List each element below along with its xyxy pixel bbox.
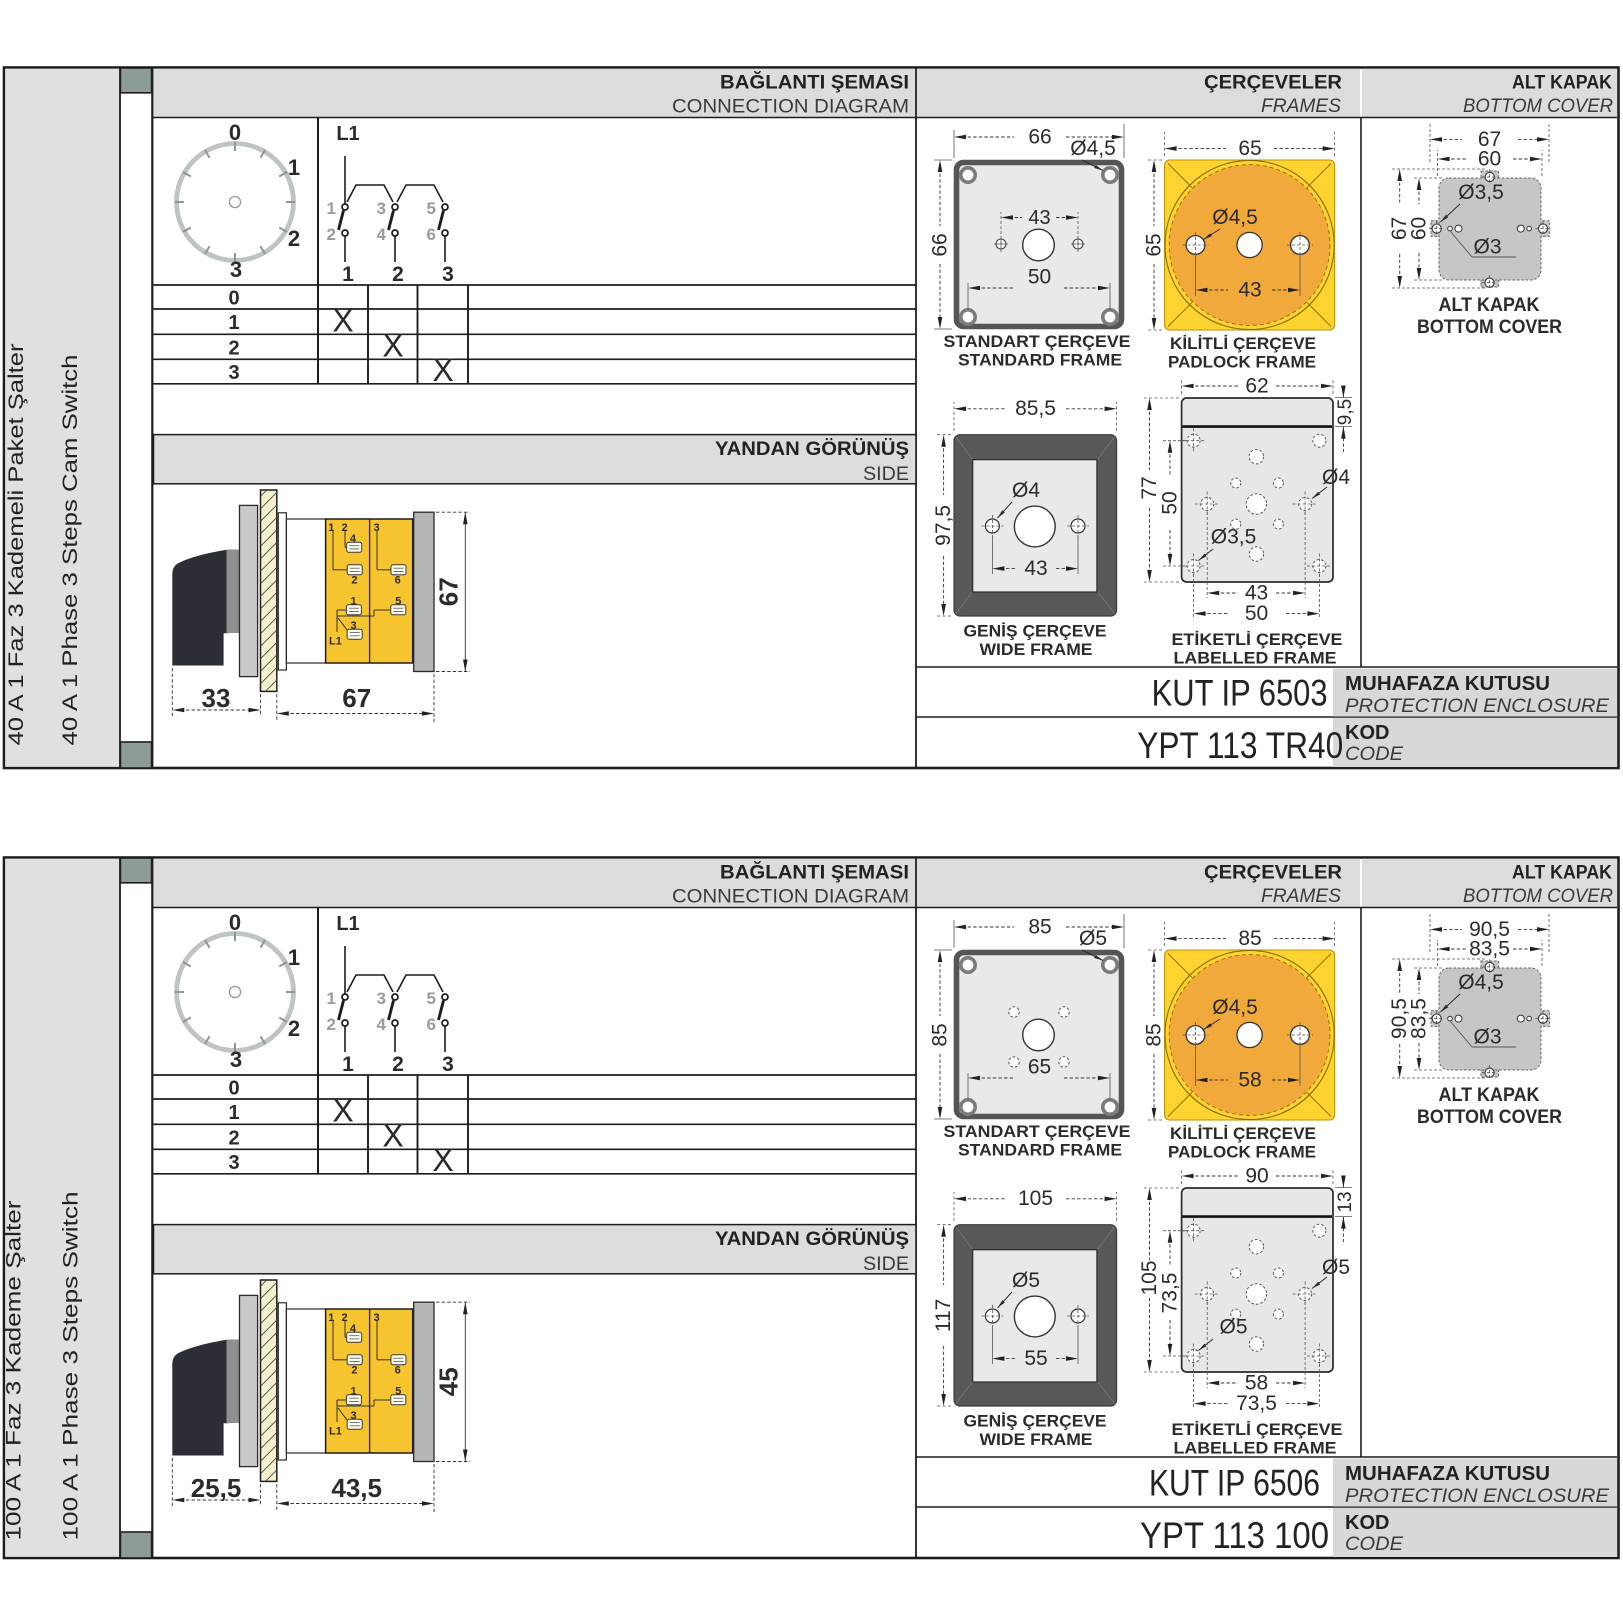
svg-text:3: 3: [351, 1410, 357, 1422]
svg-text:85: 85: [1143, 1023, 1166, 1046]
svg-text:67: 67: [342, 683, 371, 713]
svg-text:40 A 1 Phase 3 Steps Cam Switc: 40 A 1 Phase 3 Steps Cam Switch: [58, 355, 82, 746]
svg-text:2: 2: [288, 226, 300, 251]
svg-text:YPT 113 100: YPT 113 100: [1140, 1515, 1329, 1556]
svg-text:PADLOCK FRAME: PADLOCK FRAME: [1168, 353, 1316, 372]
svg-text:BOTTOM COVER: BOTTOM COVER: [1417, 1106, 1562, 1128]
svg-text:6: 6: [395, 1365, 401, 1377]
svg-text:97,5: 97,5: [932, 505, 955, 546]
svg-text:ALT KAPAK: ALT KAPAK: [1439, 1084, 1540, 1106]
svg-text:4: 4: [377, 225, 387, 244]
svg-text:X: X: [382, 1118, 403, 1154]
svg-text:STANDARD FRAME: STANDARD FRAME: [958, 1141, 1122, 1160]
svg-text:STANDART ÇERÇEVE: STANDART ÇERÇEVE: [944, 1122, 1131, 1141]
svg-text:50: 50: [1028, 266, 1051, 289]
svg-text:85: 85: [1238, 927, 1261, 950]
svg-text:Ø4,5: Ø4,5: [1212, 996, 1258, 1019]
svg-text:1: 1: [342, 263, 354, 286]
svg-text:1: 1: [228, 1102, 239, 1124]
svg-text:CODE: CODE: [1345, 743, 1404, 765]
svg-text:43,5: 43,5: [331, 1473, 382, 1503]
svg-text:13: 13: [1335, 1191, 1356, 1212]
svg-text:0: 0: [229, 120, 241, 145]
svg-text:STANDART ÇERÇEVE: STANDART ÇERÇEVE: [944, 332, 1131, 351]
svg-text:4: 4: [377, 1015, 387, 1034]
svg-text:5: 5: [395, 596, 401, 608]
svg-text:1: 1: [351, 596, 357, 608]
svg-text:50: 50: [1159, 491, 1182, 514]
svg-text:6: 6: [427, 1015, 436, 1034]
svg-text:YANDAN GÖRÜNÜŞ: YANDAN GÖRÜNÜŞ: [715, 437, 909, 460]
svg-text:2: 2: [288, 1016, 300, 1041]
svg-text:GENİŞ ÇERÇEVE: GENİŞ ÇERÇEVE: [964, 622, 1107, 641]
svg-text:Ø5: Ø5: [1079, 927, 1107, 950]
svg-text:ALT KAPAK: ALT KAPAK: [1512, 862, 1612, 884]
svg-text:ÇERÇEVELER: ÇERÇEVELER: [1204, 862, 1342, 884]
svg-text:55: 55: [1024, 1347, 1047, 1370]
svg-text:100 A 1 Phase 3 Steps Switch: 100 A 1 Phase 3 Steps Switch: [58, 1192, 82, 1541]
svg-text:65: 65: [1238, 137, 1261, 160]
svg-text:25,5: 25,5: [191, 1473, 242, 1503]
svg-text:62: 62: [1245, 375, 1268, 398]
svg-text:Ø4,5: Ø4,5: [1458, 971, 1504, 994]
svg-text:2: 2: [392, 263, 404, 286]
svg-text:83,5: 83,5: [1469, 938, 1510, 961]
svg-text:Ø3,5: Ø3,5: [1211, 526, 1257, 549]
svg-text:Ø5: Ø5: [1219, 1316, 1247, 1339]
svg-text:Ø5: Ø5: [1322, 1256, 1350, 1279]
svg-text:2: 2: [351, 575, 357, 587]
svg-text:3: 3: [442, 263, 454, 286]
svg-text:ETİKETLİ ÇERÇEVE: ETİKETLİ ÇERÇEVE: [1172, 630, 1343, 649]
svg-text:ALT KAPAK: ALT KAPAK: [1439, 294, 1540, 316]
svg-text:ALT KAPAK: ALT KAPAK: [1512, 72, 1612, 94]
svg-text:KUT IP 6506: KUT IP 6506: [1149, 1463, 1320, 1504]
svg-text:YPT 113 TR40: YPT 113 TR40: [1137, 725, 1343, 766]
svg-text:L1: L1: [329, 1426, 342, 1438]
svg-text:2: 2: [392, 1053, 404, 1076]
svg-text:WIDE FRAME: WIDE FRAME: [980, 640, 1093, 659]
svg-text:3: 3: [228, 362, 239, 384]
svg-text:1: 1: [327, 989, 336, 1008]
svg-text:WIDE FRAME: WIDE FRAME: [980, 1430, 1093, 1449]
svg-text:1: 1: [342, 1053, 354, 1076]
svg-text:60: 60: [1478, 148, 1501, 171]
svg-text:GENİŞ ÇERÇEVE: GENİŞ ÇERÇEVE: [964, 1412, 1107, 1431]
svg-text:Ø5: Ø5: [1012, 1269, 1040, 1292]
svg-text:FRAMES: FRAMES: [1261, 96, 1341, 117]
svg-text:KOD: KOD: [1345, 722, 1389, 744]
svg-text:2: 2: [342, 1312, 348, 1324]
svg-text:Ø3: Ø3: [1473, 1026, 1501, 1049]
svg-text:STANDARD FRAME: STANDARD FRAME: [958, 351, 1122, 370]
svg-text:43: 43: [1238, 279, 1261, 302]
svg-text:BOTTOM COVER: BOTTOM COVER: [1463, 96, 1613, 117]
svg-text:SIDE: SIDE: [863, 464, 909, 485]
svg-text:Ø4,5: Ø4,5: [1070, 137, 1116, 160]
svg-text:CONNECTION DIAGRAM: CONNECTION DIAGRAM: [672, 97, 909, 118]
svg-text:X: X: [332, 1093, 353, 1129]
svg-text:3: 3: [377, 989, 386, 1008]
svg-text:CONNECTION DIAGRAM: CONNECTION DIAGRAM: [672, 887, 909, 908]
svg-text:2: 2: [327, 1015, 336, 1034]
svg-text:ETİKETLİ ÇERÇEVE: ETİKETLİ ÇERÇEVE: [1172, 1420, 1343, 1439]
svg-text:L1: L1: [329, 636, 342, 648]
svg-text:2: 2: [327, 225, 336, 244]
svg-text:CODE: CODE: [1345, 1533, 1404, 1555]
svg-text:65: 65: [1143, 233, 1166, 256]
svg-text:50: 50: [1245, 602, 1268, 625]
svg-text:PROTECTION ENCLOSURE: PROTECTION ENCLOSURE: [1345, 1485, 1610, 1507]
svg-text:66: 66: [929, 233, 952, 256]
svg-text:105: 105: [1018, 1187, 1053, 1210]
svg-text:3: 3: [228, 1152, 239, 1174]
svg-text:2: 2: [342, 522, 348, 534]
svg-text:73,5: 73,5: [1159, 1273, 1182, 1314]
svg-text:2: 2: [228, 1127, 239, 1149]
svg-text:3: 3: [374, 522, 380, 534]
svg-text:83,5: 83,5: [1408, 998, 1431, 1039]
svg-text:60: 60: [1408, 217, 1431, 240]
svg-text:5: 5: [395, 1386, 401, 1398]
svg-text:X: X: [332, 303, 353, 339]
svg-text:KİLİTLİ ÇERÇEVE: KİLİTLİ ÇERÇEVE: [1170, 334, 1316, 353]
svg-text:X: X: [382, 328, 403, 364]
svg-text:LABELLED FRAME: LABELLED FRAME: [1174, 1439, 1337, 1458]
svg-text:67: 67: [434, 577, 464, 606]
svg-text:LABELLED FRAME: LABELLED FRAME: [1174, 649, 1337, 668]
svg-text:BOTTOM COVER: BOTTOM COVER: [1463, 886, 1613, 907]
svg-text:43: 43: [1024, 557, 1047, 580]
svg-text:40 A 1 Faz 3 Kademeli Paket Şa: 40 A 1 Faz 3 Kademeli Paket Şalter: [4, 344, 28, 746]
svg-text:1: 1: [327, 199, 336, 218]
svg-text:90: 90: [1245, 1165, 1268, 1188]
svg-text:9,5: 9,5: [1335, 399, 1356, 425]
svg-text:2: 2: [228, 337, 239, 359]
svg-text:L1: L1: [336, 123, 359, 145]
svg-text:X: X: [432, 1142, 453, 1178]
svg-text:58: 58: [1238, 1069, 1261, 1092]
svg-text:1: 1: [328, 1312, 334, 1324]
svg-text:1: 1: [228, 312, 239, 334]
svg-text:5: 5: [427, 989, 436, 1008]
svg-text:3: 3: [442, 1053, 454, 1076]
svg-text:45: 45: [434, 1367, 464, 1396]
svg-text:6: 6: [427, 225, 436, 244]
svg-text:L1: L1: [336, 913, 359, 935]
svg-text:73,5: 73,5: [1236, 1392, 1277, 1415]
svg-text:YANDAN GÖRÜNÜŞ: YANDAN GÖRÜNÜŞ: [715, 1227, 909, 1250]
svg-text:ÇERÇEVELER: ÇERÇEVELER: [1204, 72, 1342, 94]
svg-text:Ø3: Ø3: [1473, 236, 1501, 259]
svg-text:KUT IP 6503: KUT IP 6503: [1152, 673, 1328, 714]
svg-text:3: 3: [230, 1047, 242, 1072]
svg-text:SIDE: SIDE: [863, 1254, 909, 1275]
svg-text:1: 1: [328, 522, 334, 534]
svg-text:0: 0: [229, 910, 241, 935]
svg-text:1: 1: [288, 945, 300, 970]
svg-text:BAĞLANTI ŞEMASI: BAĞLANTI ŞEMASI: [720, 861, 909, 884]
svg-text:Ø4,5: Ø4,5: [1212, 206, 1258, 229]
svg-text:0: 0: [228, 288, 239, 310]
svg-text:3: 3: [230, 257, 242, 282]
svg-text:MUHAFAZA KUTUSU: MUHAFAZA KUTUSU: [1345, 673, 1550, 695]
svg-text:0: 0: [228, 1078, 239, 1100]
svg-text:6: 6: [395, 575, 401, 587]
svg-text:Ø3,5: Ø3,5: [1458, 181, 1504, 204]
svg-text:KOD: KOD: [1345, 1512, 1389, 1534]
svg-text:Ø4: Ø4: [1322, 466, 1350, 489]
svg-text:PADLOCK FRAME: PADLOCK FRAME: [1168, 1143, 1316, 1162]
svg-text:4: 4: [350, 533, 357, 545]
svg-text:5: 5: [427, 199, 436, 218]
svg-text:1: 1: [351, 1386, 357, 1398]
svg-text:117: 117: [932, 1299, 955, 1332]
svg-text:PROTECTION ENCLOSURE: PROTECTION ENCLOSURE: [1345, 695, 1610, 717]
svg-text:MUHAFAZA KUTUSU: MUHAFAZA KUTUSU: [1345, 1463, 1550, 1485]
svg-text:33: 33: [202, 683, 231, 713]
svg-text:3: 3: [377, 199, 386, 218]
svg-text:100 A 1 Faz 3 Kademe Şalter: 100 A 1 Faz 3 Kademe Şalter: [2, 1201, 26, 1541]
svg-text:66: 66: [1028, 126, 1051, 149]
svg-text:3: 3: [351, 620, 357, 632]
svg-text:3: 3: [374, 1312, 380, 1324]
svg-text:1: 1: [288, 155, 300, 180]
svg-text:BAĞLANTI ŞEMASI: BAĞLANTI ŞEMASI: [720, 71, 909, 94]
svg-text:85,5: 85,5: [1015, 397, 1056, 420]
svg-text:43: 43: [1028, 207, 1050, 229]
svg-text:Ø4: Ø4: [1012, 479, 1040, 502]
svg-text:4: 4: [350, 1323, 357, 1335]
svg-text:BOTTOM COVER: BOTTOM COVER: [1417, 316, 1562, 338]
svg-text:KİLİTLİ ÇERÇEVE: KİLİTLİ ÇERÇEVE: [1170, 1124, 1316, 1143]
svg-text:2: 2: [351, 1365, 357, 1377]
svg-text:85: 85: [929, 1023, 952, 1046]
svg-text:85: 85: [1028, 916, 1051, 939]
svg-text:65: 65: [1028, 1056, 1051, 1079]
svg-text:FRAMES: FRAMES: [1261, 886, 1341, 907]
svg-text:X: X: [432, 352, 453, 388]
